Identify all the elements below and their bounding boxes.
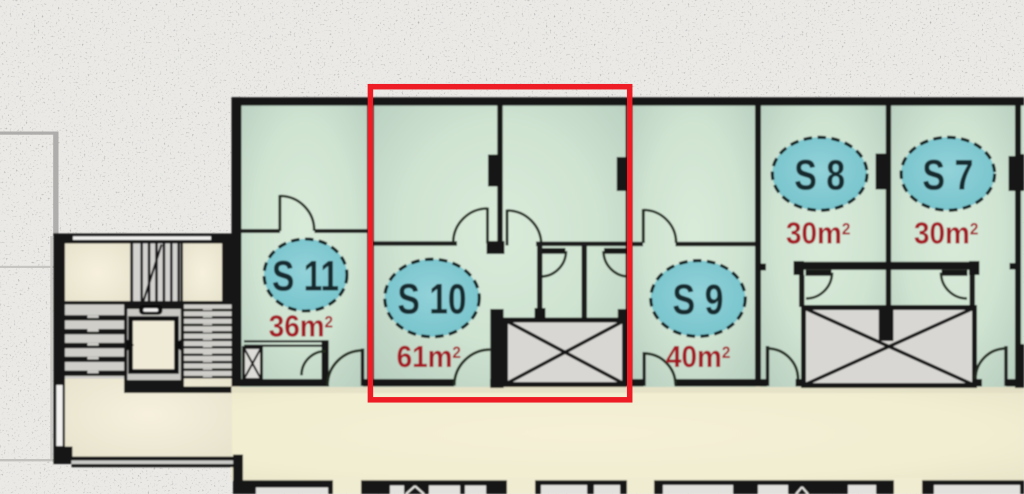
svg-text:S 11: S 11	[272, 253, 339, 301]
svg-text:S 8: S 8	[794, 152, 845, 200]
svg-text:30m2: 30m2	[786, 216, 850, 251]
svg-text:36m2: 36m2	[269, 309, 333, 344]
svg-text:40m2: 40m2	[666, 340, 730, 375]
svg-text:S 7: S 7	[922, 152, 973, 200]
svg-text:61m2: 61m2	[397, 339, 461, 374]
svg-text:30m2: 30m2	[914, 216, 978, 251]
svg-text:S 10: S 10	[398, 276, 467, 324]
svg-text:S 9: S 9	[673, 276, 724, 324]
